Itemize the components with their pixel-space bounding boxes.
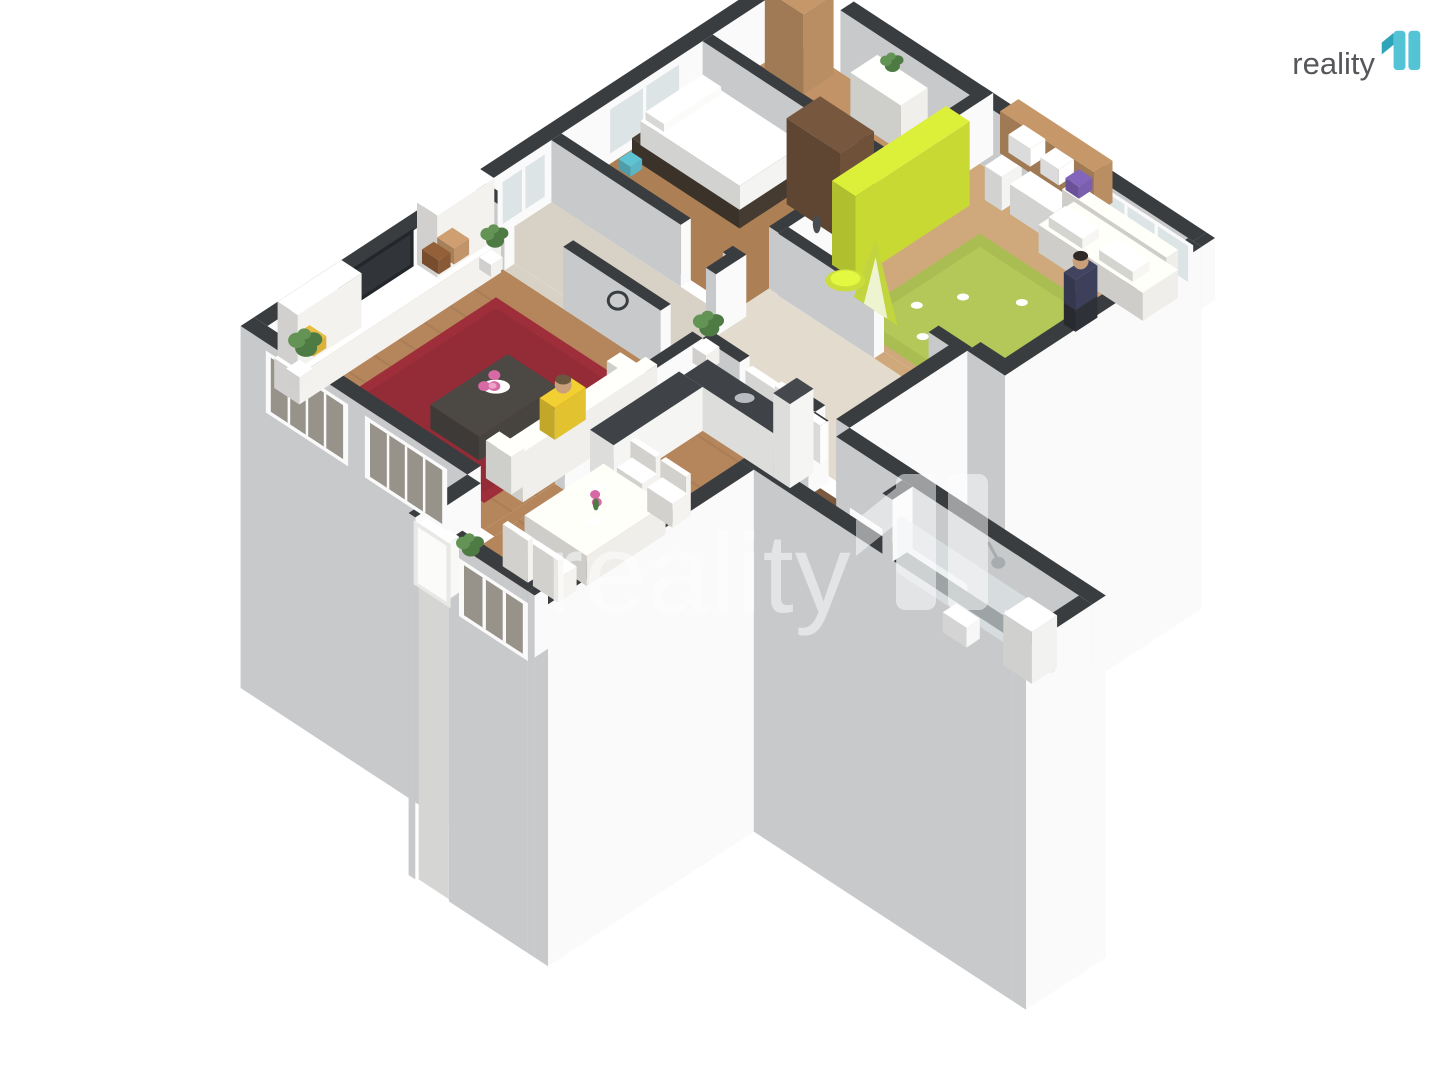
facade-window-mullion	[503, 591, 506, 643]
person-hair	[1073, 251, 1088, 261]
toy	[957, 294, 969, 301]
brand-logo-number-icon	[1378, 24, 1424, 76]
water-heater-lid	[1015, 605, 1045, 622]
kids-table	[830, 270, 860, 286]
shower-head-icon	[991, 557, 1005, 569]
floorplan-page: reality reality	[0, 0, 1440, 1080]
wall	[681, 218, 691, 287]
wall	[1092, 596, 1105, 967]
flowers-icon	[488, 370, 500, 380]
facade-window-mullion	[324, 393, 327, 449]
flowers-icon	[590, 490, 600, 499]
sink	[735, 393, 755, 403]
toy	[1016, 299, 1028, 306]
facade-window-mullion	[423, 457, 426, 513]
flower-stem	[593, 498, 599, 510]
plant-icon	[488, 224, 499, 233]
wall	[1202, 238, 1215, 309]
facade-window-mullion	[405, 446, 408, 502]
window-mullion	[522, 167, 525, 211]
plant-icon	[298, 328, 311, 339]
facade-window-mullion	[483, 577, 486, 629]
apartment-scene	[241, 0, 1215, 1010]
floorplan-3d-render: reality	[0, 0, 1440, 1080]
wall	[1013, 639, 1026, 1010]
plant-icon	[464, 533, 475, 542]
wall	[769, 227, 779, 296]
flowers-icon	[478, 381, 490, 391]
wall-clock-icon	[610, 294, 626, 308]
person-hair	[555, 375, 571, 385]
facade-window-mullion	[387, 434, 390, 490]
brand-logo-text: reality	[1292, 51, 1375, 76]
dining-chair	[528, 537, 533, 582]
kitchen-tall-cabinet	[790, 389, 814, 488]
plant-icon	[702, 311, 714, 321]
watermark-text: reality	[546, 511, 852, 636]
toy	[917, 333, 929, 340]
flowers-icon	[489, 383, 497, 389]
toy	[911, 302, 923, 309]
kids-wardrobe	[832, 181, 856, 280]
mirror-icon	[813, 215, 821, 233]
wall	[528, 591, 535, 957]
plant-icon	[887, 53, 896, 61]
kitchen-tall-cabinet	[773, 393, 790, 488]
picture-frame	[820, 422, 827, 464]
brand-logo: reality	[1292, 24, 1424, 76]
